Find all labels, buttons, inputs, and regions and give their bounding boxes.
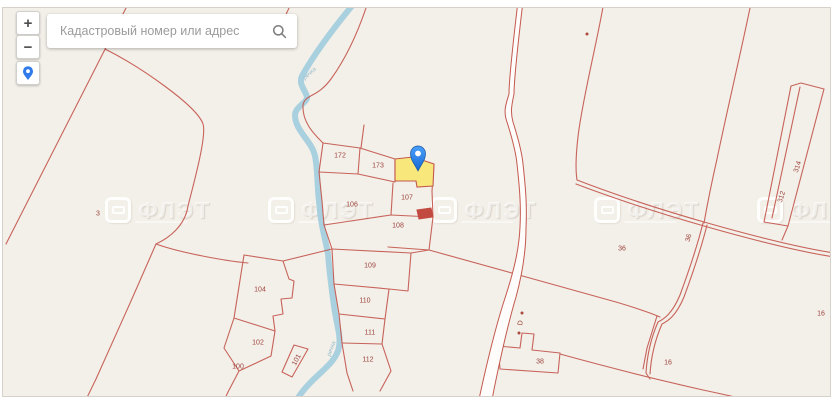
- map-canvas[interactable]: 1721731071061081091101111121041021011003…: [2, 7, 831, 397]
- map-lines: [3, 8, 830, 396]
- location-pin-icon: [22, 66, 34, 81]
- parcel-boundaries: [6, 8, 830, 396]
- building-block: [417, 208, 433, 219]
- road: [475, 8, 526, 396]
- zoom-in-button[interactable]: +: [16, 11, 40, 35]
- search-box: [47, 14, 297, 48]
- zoom-out-button[interactable]: −: [16, 35, 40, 59]
- search-icon: [272, 24, 287, 39]
- river: [292, 8, 356, 396]
- page: { "search": { "placeholder": "Кадастровы…: [0, 0, 833, 413]
- search-input[interactable]: [47, 24, 272, 38]
- locate-button[interactable]: [16, 61, 40, 85]
